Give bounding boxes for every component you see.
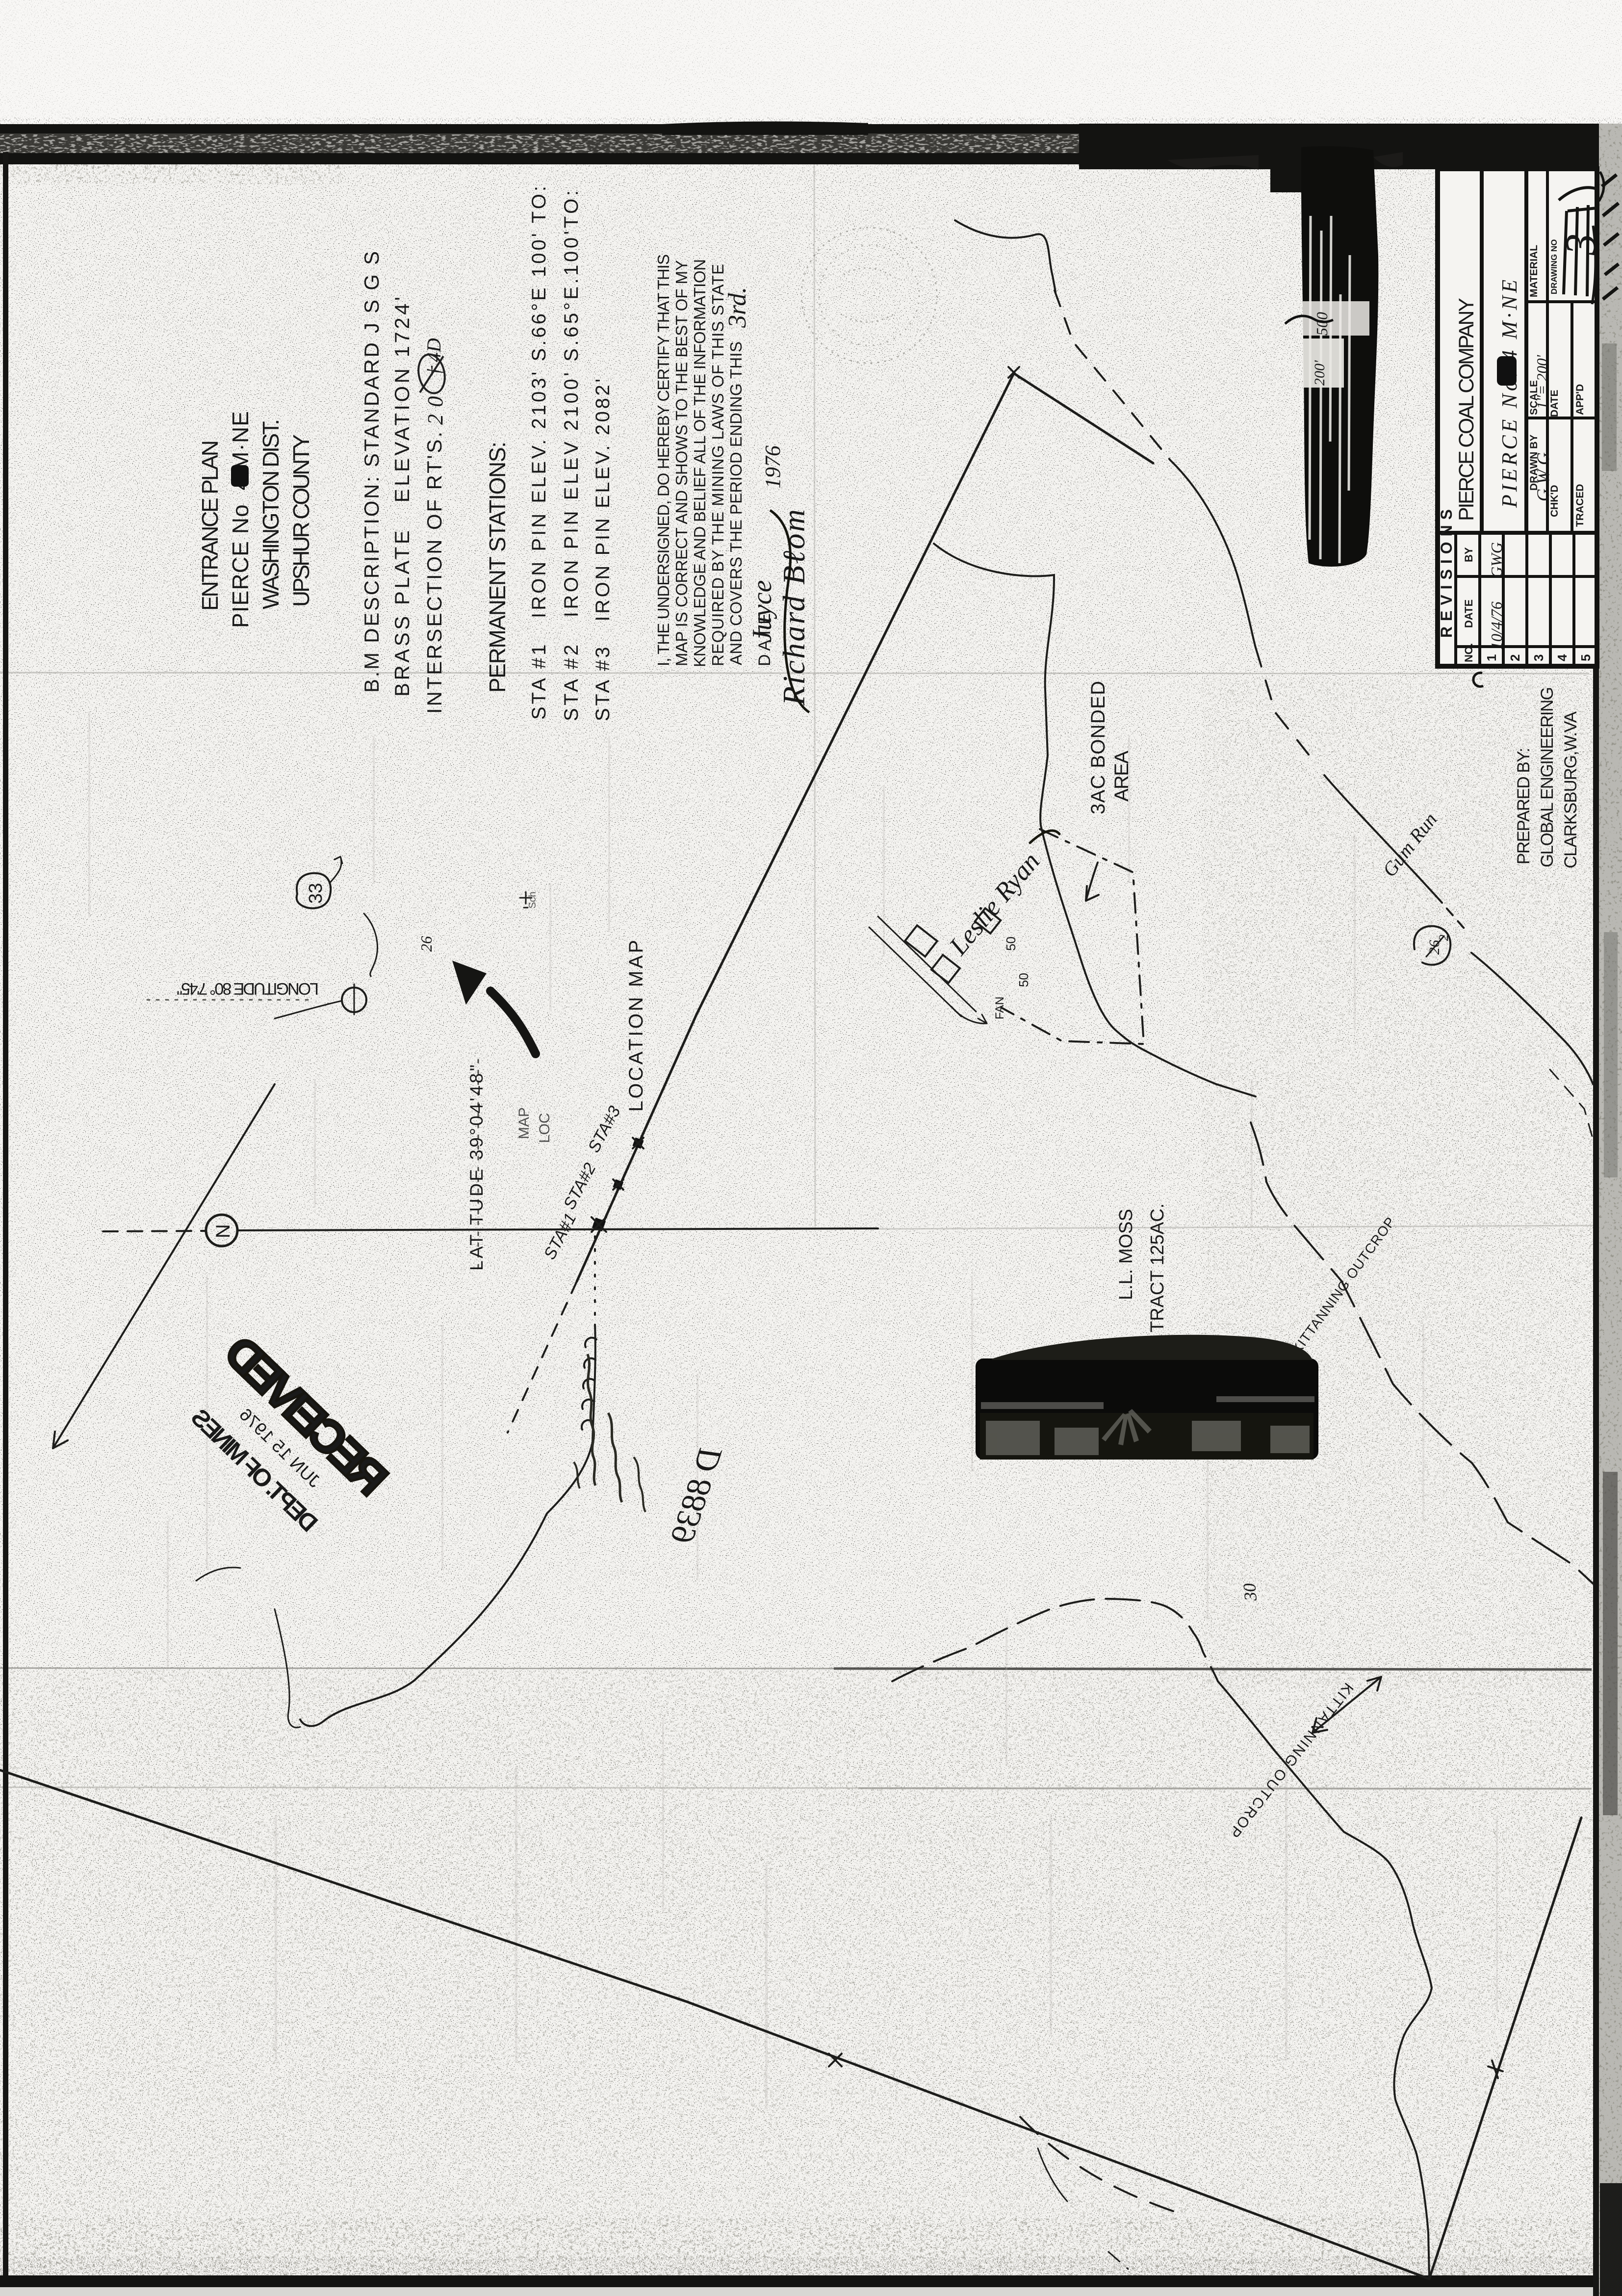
- svg-text:L.L. MOSS: L.L. MOSS: [1116, 1209, 1136, 1300]
- svg-text:B.M DESCRIPTION: STANDARD J S: B.M DESCRIPTION: STANDARD J S G S: [360, 251, 383, 693]
- svg-text:30: 30: [1239, 1582, 1261, 1602]
- svg-text:LOC: LOC: [537, 1113, 553, 1143]
- svg-text:3AC BONDED: 3AC BONDED: [1087, 681, 1109, 814]
- svg-text:200': 200': [1312, 360, 1328, 386]
- svg-text:TRACT 125AC.: TRACT 125AC.: [1147, 1203, 1168, 1332]
- svg-text:PERMANENT STATIONS:: PERMANENT STATIONS:: [485, 442, 510, 693]
- svg-text:PIERCE No 4 M·NE: PIERCE No 4 M·NE: [228, 411, 253, 628]
- svg-text:1976: 1976: [761, 445, 785, 489]
- svg-text:500: 500: [1313, 312, 1331, 336]
- svg-text:PREPARED BY:: PREPARED BY:: [1514, 748, 1533, 864]
- svg-text:ENTRANCE PLAN: ENTRANCE PLAN: [197, 440, 223, 611]
- svg-text:NO.: NO.: [1463, 643, 1475, 662]
- svg-text:5: 5: [1578, 654, 1593, 661]
- svg-text:AREA: AREA: [1111, 751, 1133, 802]
- svg-text:PIERCE COAL COMPANY: PIERCE COAL COMPANY: [1455, 298, 1478, 521]
- svg-text:MATERIAL: MATERIAL: [1528, 245, 1540, 297]
- svg-text:Richard Bℓom: Richard Bℓom: [776, 509, 811, 706]
- svg-text:33: 33: [306, 883, 326, 904]
- svg-text:DATE: DATE: [1463, 600, 1475, 628]
- svg-text:3: 3: [1531, 654, 1546, 661]
- svg-text:BY: BY: [1463, 547, 1475, 562]
- svg-text:WASHINGTON DIST.: WASHINGTON DIST.: [258, 419, 283, 609]
- svg-text:3rd.: 3rd.: [723, 287, 751, 328]
- svg-text:AND COVERS THE PERIOD ENDING T: AND COVERS THE PERIOD ENDING THIS: [727, 341, 745, 665]
- svg-text:CLARKSBURG,W.VA: CLARKSBURG,W.VA: [1561, 711, 1580, 868]
- svg-text:PIERCE No. 4 M·NE: PIERCE No. 4 M·NE: [1497, 280, 1521, 508]
- svg-text:BRASS PLATE ELEVATION 1724': BRASS PLATE ELEVATION 1724': [390, 297, 413, 697]
- svg-text:2: 2: [1508, 654, 1522, 661]
- svg-text:UPSHUR COUNTY: UPSHUR COUNTY: [288, 434, 314, 607]
- svg-text:TRACED: TRACED: [1574, 484, 1586, 527]
- svg-text:Sch: Sch: [527, 892, 538, 909]
- svg-text:REVISIONS: REVISIONS: [1438, 509, 1455, 638]
- svg-text:GLOBAL ENGINEERING: GLOBAL ENGINEERING: [1538, 687, 1557, 867]
- svg-text:1: 1: [1484, 654, 1499, 661]
- svg-text:1"= 200': 1"= 200': [1533, 354, 1550, 409]
- svg-text:I, THE UNDERSIGNED, DO HEREBY: I, THE UNDERSIGNED, DO HEREBY CERTIFY TH…: [654, 254, 672, 666]
- svg-text:MAP IS CORRECT AND SHOWS TO TH: MAP IS CORRECT AND SHOWS TO THE BEST OF …: [672, 260, 691, 666]
- svg-text:LONGITUDE 80° 7'45": LONGITUDE 80° 7'45": [177, 979, 319, 998]
- svg-text:DATE: DATE: [1549, 390, 1560, 417]
- svg-text:G W G: G W G: [1533, 452, 1553, 501]
- svg-text:50: 50: [1016, 973, 1031, 987]
- svg-text:LOCATION MAP: LOCATION MAP: [625, 940, 647, 1112]
- svg-text:N: N: [212, 1224, 234, 1238]
- svg-text:KNOWLEDGE AND BELIEF ALL OF TH: KNOWLEDGE AND BELIEF ALL OF THE INFORMAT…: [691, 259, 709, 667]
- svg-text:GWG: GWG: [1488, 542, 1505, 578]
- svg-text:MAP: MAP: [516, 1107, 532, 1139]
- svg-text:50: 50: [1004, 937, 1018, 951]
- svg-text:APP'D: APP'D: [1574, 384, 1586, 415]
- svg-text:4: 4: [1555, 654, 1570, 661]
- svg-text:FAN: FAN: [993, 996, 1006, 1019]
- svg-text:STA #3 IRON PIN ELEV. 2082': STA #3 IRON PIN ELEV. 2082': [592, 379, 614, 721]
- svg-text:10/4/76: 10/4/76: [1488, 601, 1505, 650]
- svg-text:Juyce: Juyce: [747, 580, 777, 643]
- svg-text:26: 26: [417, 936, 435, 952]
